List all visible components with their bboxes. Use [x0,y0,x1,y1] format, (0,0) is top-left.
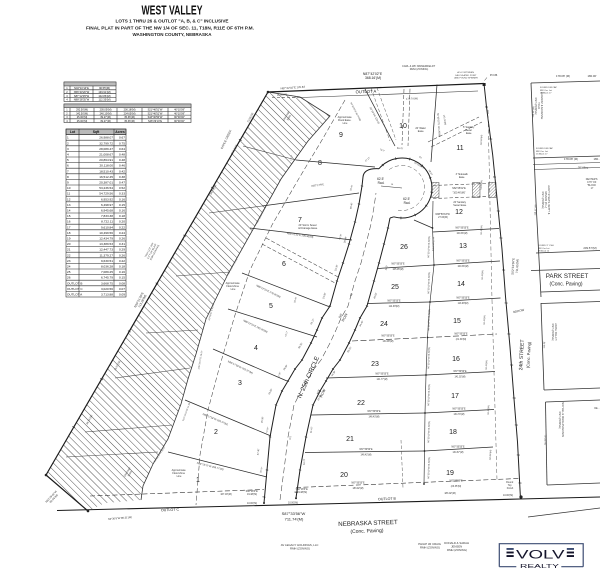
svg-text:113.08'(M): 113.08'(M) [458,303,469,305]
svg-text:16: 16 [67,220,71,224]
svg-text:0.16: 0.16 [119,270,125,274]
svg-text:18,510.43: 18,510.43 [99,169,113,173]
svg-text:N88°28'35"W: N88°28'35"W [74,98,90,102]
svg-text:4: 4 [254,345,258,352]
svg-text:0.20: 0.20 [119,220,125,224]
svg-text:17: 17 [451,393,459,400]
svg-text:24: 24 [67,265,71,269]
svg-text:6,945.68: 6,945.68 [101,209,113,213]
svg-text:178.08' (M): 178.08' (M) [556,74,570,78]
svg-text:178.08' (M): 178.08' (M) [564,157,578,161]
svg-text:9: 9 [67,181,69,185]
svg-text:40°10'09": 40°10'09" [174,109,185,112]
svg-text:N87°30'50"E: N87°30'50"E [359,449,372,451]
svg-text:21: 21 [346,436,354,443]
svg-text:P.O.B.: P.O.B. [490,73,498,77]
svg-text:OUTLOT B: OUTLOT B [67,281,82,285]
svg-text:35.36'(M): 35.36'(M) [124,116,135,119]
svg-text:0.16: 0.16 [119,197,125,201]
svg-text:PHILIP JR CRAIG RMH (ZONING): PHILIP JR CRAIG RMH (ZONING) [418,542,441,549]
svg-text:20: 20 [340,472,348,479]
svg-text:10.00'(M): 10.00'(M) [288,502,298,505]
svg-text:7,833.38: 7,833.38 [101,214,113,218]
svg-text:14: 14 [457,281,465,288]
svg-text:7: 7 [298,217,302,224]
svg-text:6,953.92: 6,953.92 [101,197,113,201]
svg-text:139.91'(M): 139.91'(M) [98,90,110,94]
svg-text:167.18'(M): 167.18'(M) [220,493,232,496]
svg-text:S87°12'35"W: S87°12'35"W [74,94,90,98]
svg-text:53,236.54: 53,236.54 [99,186,113,190]
svg-text:292.50'(M): 292.50'(M) [76,109,88,112]
svg-text:90°00'00": 90°00'00" [174,116,185,119]
svg-text:22: 22 [357,400,365,407]
svg-text:20,118.00: 20,118.00 [99,164,113,168]
svg-text:0.67: 0.67 [119,136,125,140]
svg-text:10.00'(M): 10.00'(M) [503,494,513,497]
svg-text:N87°30'50"E: N87°30'50"E [387,300,400,302]
svg-text:Lot: Lot [70,130,76,134]
svg-text:N87°30'50"E: N87°30'50"E [451,446,464,448]
svg-text:0.64: 0.64 [119,147,125,151]
svg-text:N87°30'50"E: N87°30'50"E [452,408,465,410]
svg-text:1: 1 [196,477,200,484]
svg-text:18: 18 [67,231,71,235]
svg-text:0.16: 0.16 [119,209,125,213]
svg-text:3: 3 [238,380,242,387]
svg-text:40°10'09": 40°10'09" [174,112,185,115]
svg-text:146.42'(M): 146.42'(M) [361,455,372,457]
svg-text:4: 4 [67,153,69,157]
svg-text:62.5' Rad.: 62.5' Rad. [403,197,411,205]
svg-text:N87°30'50"E: N87°30'50"E [449,480,462,482]
svg-text:S21°46'51"W: S21°46'51"W [148,112,163,115]
svg-text:FINAL PLAT IN PART OF THE NW 1: FINAL PLAT IN PART OF THE NW 1/4 OF SEC.… [86,25,254,31]
svg-text:10.00'(M): 10.00'(M) [247,502,257,505]
svg-text:S21°46'51"W: S21°46'51"W [148,109,163,112]
svg-text:16: 16 [452,356,460,363]
svg-text:7: 7 [67,169,69,173]
svg-text:Acres: Acres [115,130,125,134]
svg-text:A 5.0' W/TWEEN CALCULATED POIN: A 5.0' W/TWEEN CALCULATED POINT AND FOUN… [454,71,478,80]
svg-text:17: 17 [67,225,71,229]
svg-text:146.43'(M): 146.43'(M) [369,417,380,419]
svg-text:141.77'(M): 141.77'(M) [377,379,388,381]
svg-text:32,799.72: 32,799.72 [99,141,113,145]
svg-text:0.46: 0.46 [119,164,125,168]
svg-text:Sqft: Sqft [93,130,100,134]
svg-text:7,089.25: 7,089.25 [101,270,113,274]
svg-text:35.36'(M): 35.36'(M) [124,120,135,123]
svg-text:13,389.53: 13,389.53 [99,242,113,246]
svg-text:S87°33'56"W 711.74'(M): S87°33'56"W 711.74'(M) [282,511,307,522]
svg-text:18: 18 [449,429,457,436]
svg-text:WEST VALLEY: WEST VALLEY [142,4,203,18]
svg-text:25.00'(M): 25.00'(M) [77,120,88,123]
svg-text:9: 9 [339,132,343,139]
svg-text:15: 15 [453,318,461,325]
svg-text:2: 2 [67,141,69,145]
svg-text:20' Sanitary Sewer Ease.: 20' Sanitary Sewer Ease. [453,201,467,207]
svg-text:24: 24 [380,321,388,328]
svg-text:0.48: 0.48 [119,158,125,162]
svg-text:13: 13 [459,243,467,250]
svg-text:PARK STREET: PARK STREET [546,273,589,280]
svg-text:OUTLOT C: OUTLOT C [67,287,83,291]
svg-text:0.31: 0.31 [119,242,125,246]
svg-text:(21.30'(M): (21.30'(M) [456,339,467,341]
svg-text:0.48: 0.48 [119,153,125,157]
svg-text:342.50'(M): 342.50'(M) [76,112,88,115]
svg-text:141.02'(M): 141.02'(M) [455,377,466,379]
svg-text:0.07: 0.07 [119,287,125,291]
svg-text:N87°30'50"E: N87°30'50"E [351,482,364,484]
svg-text:25: 25 [391,284,399,291]
svg-text:0.18: 0.18 [119,265,125,269]
svg-text:N56°43'20"W: N56°43'20"W [74,90,90,94]
svg-text:28,089.47: 28,089.47 [99,147,113,151]
svg-text:6,498.97: 6,498.97 [101,203,113,207]
svg-text:0.08: 0.08 [119,281,125,285]
svg-text:DE...: DE... [594,407,600,410]
svg-text:19: 19 [446,470,454,477]
svg-text:8: 8 [318,160,322,167]
svg-text:N87°30'50"E: N87°30'50"E [381,335,394,337]
svg-text:N87°30'50"E: N87°30'50"E [455,227,468,229]
svg-text:12,434.79: 12,434.79 [99,237,113,241]
svg-text:26: 26 [67,276,71,280]
svg-text:179.70'(M): 179.70'(M) [406,97,418,100]
svg-text:N87°30'50"E: N87°30'50"E [456,297,469,299]
svg-text:OUTLOT C: OUTLOT C [161,508,180,513]
svg-text:20,864.91: 20,864.91 [99,158,113,162]
svg-text:(Conc. Paving): (Conc. Paving) [350,528,384,535]
svg-text:25.00'(M): 25.00'(M) [77,116,88,119]
svg-text:0.18: 0.18 [119,214,125,218]
svg-text:S02°33'56"E 711.65'(M): S02°33'56"E 711.65'(M) [511,257,520,275]
svg-text:62.5' Rad.: 62.5' Rad. [377,177,385,185]
svg-text:100.36'(M): 100.36'(M) [458,266,469,268]
svg-text:S02°18'3"E 19.48'(M): S02°18'3"E 19.48'(M) [296,488,309,494]
svg-text:19: 19 [67,237,71,241]
svg-text:9,630.51: 9,630.51 [101,259,113,263]
svg-text:(23.35'(M): (23.35'(M) [451,486,462,488]
svg-text:REALTY: REALTY [520,564,560,570]
svg-text:200.18'(M): 200.18'(M) [124,109,136,112]
svg-text:3,668.75: 3,668.75 [101,281,113,285]
svg-text:6: 6 [282,261,286,268]
svg-text:21,008.67: 21,008.67 [99,153,113,157]
svg-text:20' Alley: 20' Alley [578,166,589,170]
svg-text:8,722.11: 8,722.11 [101,220,113,224]
svg-text:0.52: 0.52 [119,186,125,190]
svg-text:0.29: 0.29 [119,248,125,252]
svg-text:10: 10 [67,186,71,190]
svg-text:5: 5 [67,158,69,162]
svg-text:11: 11 [67,192,70,196]
svg-text:114.38'(M): 114.38'(M) [389,306,400,308]
svg-text:6,745.79: 6,745.79 [101,276,113,280]
svg-text:S43°30'50"W: S43°30'50"W [148,116,163,119]
svg-text:14: 14 [67,209,71,213]
svg-text:180...: 180... [594,157,600,161]
svg-text:100.36'(M): 100.36'(M) [457,233,468,235]
svg-text:209.57'(M): 209.57'(M) [583,246,596,250]
svg-text:105.05'(M): 105.05'(M) [393,269,404,271]
svg-text:10: 10 [399,123,407,130]
svg-text:N87°30'50"E: N87°30'50"E [456,260,469,262]
svg-text:N87°30'50"E: N87°30'50"E [454,333,467,335]
svg-text:0.22: 0.22 [119,225,125,229]
svg-text:183.02'(M): 183.02'(M) [444,492,456,495]
svg-text:WASHINGTON COUNTY, NEBRASKA: WASHINGTON COUNTY, NEBRASKA [133,32,212,38]
svg-text:0.24: 0.24 [119,231,125,235]
svg-text:3,713.88: 3,713.88 [101,293,113,297]
svg-text:26: 26 [400,244,408,251]
svg-text:N87°30'50"E: N87°30'50"E [367,411,380,413]
svg-text:9,610.84: 9,610.84 [101,225,113,229]
svg-text:LOWEL WELCH RMH (ZONING): LOWEL WELCH RMH (ZONING) [551,323,557,341]
svg-text:134.70'(M): 134.70'(M) [454,414,465,416]
svg-text:N87°30'50"E: N87°30'50"E [453,371,466,373]
svg-text:22: 22 [67,253,71,257]
svg-text:25: 25 [67,270,71,274]
svg-text:0.09: 0.09 [119,293,125,297]
svg-text:11: 11 [456,145,463,152]
svg-text:3: 3 [67,147,69,151]
svg-text:234.65'(M): 234.65'(M) [124,112,136,115]
svg-text:6: 6 [67,164,69,168]
svg-text:N87°30'50"E: N87°30'50"E [391,263,404,265]
svg-text:N87°30'50"E: N87°30'50"E [375,373,388,375]
svg-text:0.26: 0.26 [119,253,125,257]
svg-text:54,729.56: 54,729.56 [99,192,113,196]
svg-text:N87°42'02"E 368.16'(M): N87°42'02"E 368.16'(M) [363,72,383,80]
svg-text:13: 13 [67,203,71,207]
svg-text:N82°45'02"E: N82°45'02"E [452,187,466,190]
svg-text:134.67'(M): 134.67'(M) [453,452,464,454]
svg-text:183.02'(M): 183.02'(M) [353,488,364,490]
svg-text:0.47: 0.47 [119,181,125,185]
svg-text:S46°29'10"E: S46°29'10"E [148,120,162,123]
svg-text:39.27'(M): 39.27'(M) [100,116,111,119]
svg-text:20' Storm Sewer & Drainage Eas: 20' Storm Sewer & Drainage Ease. [298,224,318,230]
svg-text:0.75: 0.75 [119,141,125,145]
svg-text:23: 23 [67,259,71,263]
svg-text:8: 8 [67,175,69,179]
svg-text:(Conc. Paving): (Conc. Paving) [549,282,582,288]
svg-text:OUTLOT A: OUTLOT A [67,293,83,297]
svg-text:112.35'(M): 112.35'(M) [98,98,110,102]
svg-text:10,499.56: 10,499.56 [99,231,113,235]
svg-text:LOTS 1 THRU 26 & OUTLOT "A, B,: LOTS 1 THRU 26 & OUTLOT "A, B, & C" INCL… [116,19,230,25]
svg-text:90°00'00": 90°00'00" [174,120,185,123]
svg-text:90.55'(M): 90.55'(M) [99,86,110,90]
svg-text:145.00': 145.00' [544,341,546,349]
svg-text:0.33: 0.33 [119,192,125,196]
svg-text:3,020.56: 3,020.56 [101,287,113,291]
svg-text:8,036.28: 8,036.28 [101,265,113,269]
svg-text:"100.46'(M)": "100.46'(M)" [452,192,465,195]
svg-text:21: 21 [67,248,71,252]
svg-text:5: 5 [269,303,273,310]
svg-text:20: 20 [67,242,71,246]
svg-text:12: 12 [455,209,463,216]
svg-text:15: 15 [67,214,71,218]
svg-text:0.26: 0.26 [119,237,125,241]
svg-text:0.42: 0.42 [119,169,125,173]
svg-text:134.08'(M): 134.08'(M) [383,341,394,343]
svg-text:VOLV: VOLV [516,547,565,561]
svg-text:16,512.45: 16,512.45 [99,175,113,179]
svg-text:S02°18'3"E 19.48'(M): S02°18'3"E 19.48'(M) [246,490,259,496]
svg-text:23: 23 [371,361,379,368]
svg-text:205.05'(M): 205.05'(M) [100,109,112,112]
svg-text:0.15: 0.15 [119,276,125,280]
svg-text:0.38: 0.38 [119,175,125,179]
svg-text:1: 1 [67,136,69,140]
svg-text:N02°10'14"E: N02°10'14"E [74,86,89,90]
svg-text:102.86'(M): 102.86'(M) [98,94,110,98]
svg-text:12,447.73: 12,447.73 [99,248,113,252]
svg-text:0.15: 0.15 [119,203,125,207]
svg-text:180.00': 180.00' [587,74,597,78]
svg-text:20,387.01: 20,387.01 [99,181,113,185]
svg-text:240.10'(M): 240.10'(M) [100,112,112,115]
svg-text:0.22: 0.22 [119,259,125,263]
svg-text:OUTLOT B: OUTLOT B [378,497,397,502]
svg-text:12: 12 [67,197,71,201]
svg-text:26,988.07: 26,988.07 [99,136,113,140]
svg-text:39.27'(M): 39.27'(M) [100,120,111,123]
svg-text:11,379.27: 11,379.27 [99,253,113,257]
svg-text:2: 2 [214,429,218,436]
